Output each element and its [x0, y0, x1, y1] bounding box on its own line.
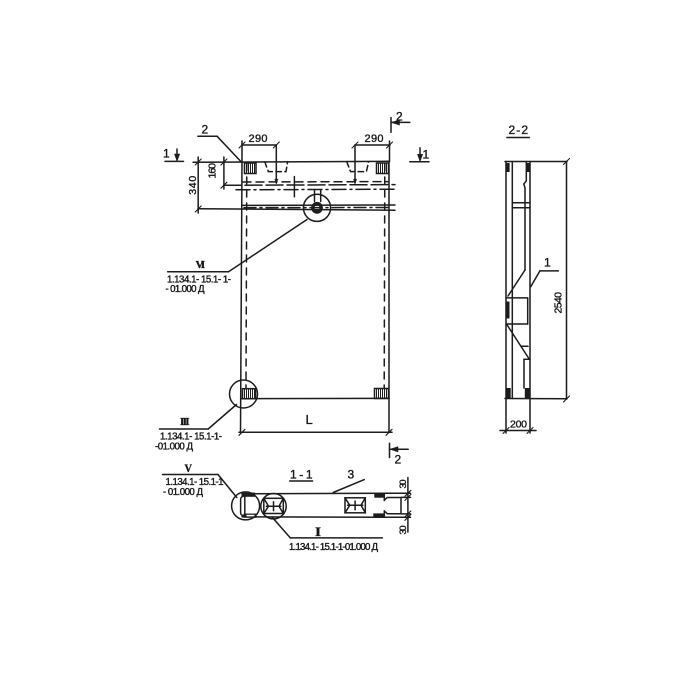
svg-text:V: V	[185, 463, 193, 475]
svg-text:2: 2	[202, 123, 209, 137]
svg-text:2540: 2540	[553, 292, 565, 314]
svg-text:290: 290	[365, 133, 384, 145]
svg-text:1 - 1: 1 - 1	[290, 467, 313, 481]
svg-text:L: L	[306, 412, 313, 427]
svg-text:I: I	[315, 524, 321, 539]
svg-text:- 01.000 Д: - 01.000 Д	[163, 487, 203, 498]
svg-text:160: 160	[207, 163, 219, 179]
svg-text:30: 30	[398, 480, 409, 489]
svg-text:1: 1	[423, 148, 430, 162]
svg-text:2: 2	[395, 453, 402, 467]
svg-text:2: 2	[396, 110, 403, 124]
svg-text:III: III	[180, 416, 190, 428]
svg-text:290: 290	[249, 133, 268, 145]
svg-text:1: 1	[544, 256, 551, 270]
svg-text:200: 200	[510, 419, 527, 431]
svg-text:VI: VI	[196, 259, 206, 271]
svg-text:2 - 2: 2 - 2	[509, 123, 529, 137]
svg-text:1: 1	[163, 147, 170, 161]
svg-text:30: 30	[398, 526, 409, 535]
svg-text:1.134.1- 15.1-1-01.000 Д: 1.134.1- 15.1-1-01.000 Д	[289, 542, 378, 553]
svg-text:340: 340	[187, 176, 199, 195]
svg-text:- 01.000 Д: - 01.000 Д	[166, 284, 205, 295]
svg-text:-01.000 Д: -01.000 Д	[155, 441, 193, 452]
svg-text:3: 3	[348, 468, 355, 482]
